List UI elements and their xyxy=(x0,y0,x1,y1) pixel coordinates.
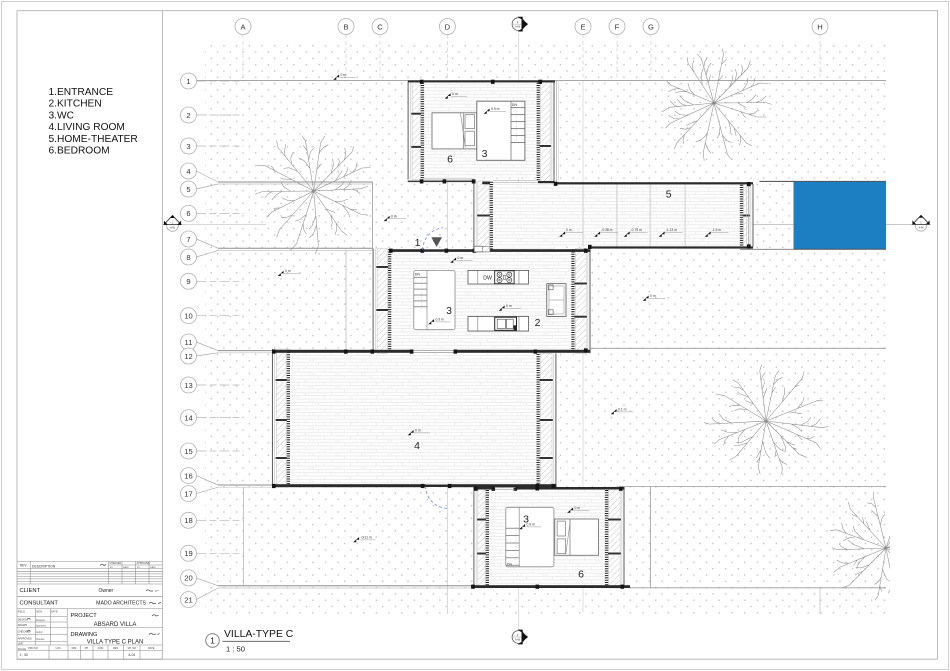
svg-text:0 m: 0 m xyxy=(285,269,291,273)
svg-text:DN: DN xyxy=(507,562,512,566)
svg-text:DRAWING: DRAWING xyxy=(71,632,98,638)
svg-text:H: H xyxy=(817,22,822,31)
svg-text:LOC.: LOC. xyxy=(56,647,62,650)
svg-text:0 m: 0 m xyxy=(650,294,656,298)
svg-text:4: 4 xyxy=(186,167,190,176)
svg-text:DATE: DATE xyxy=(123,566,129,569)
svg-text:3.WC: 3.WC xyxy=(49,110,74,121)
svg-text:F: F xyxy=(615,22,620,31)
svg-text:18: 18 xyxy=(184,516,192,525)
svg-text:COD: COD xyxy=(98,647,104,650)
svg-text:DATE: DATE xyxy=(148,647,155,650)
svg-text:0 m: 0 m xyxy=(452,92,458,96)
svg-text:DN: DN xyxy=(512,103,518,107)
svg-text:-1.5 m: -1.5 m xyxy=(712,228,722,232)
svg-text:6: 6 xyxy=(186,209,190,218)
svg-text:20: 20 xyxy=(184,574,192,583)
svg-text:DESIGN: DESIGN xyxy=(18,619,28,622)
svg-text:PH.: PH. xyxy=(85,647,89,650)
svg-text:1 : 50: 1 : 50 xyxy=(20,653,29,657)
svg-text:5.HOME-THEATER: 5.HOME-THEATER xyxy=(49,134,138,145)
svg-text:DIM.: DIM. xyxy=(72,647,78,650)
svg-text:2: 2 xyxy=(535,317,541,329)
svg-text:REV.: REV. xyxy=(20,564,27,568)
svg-text:A-06: A-06 xyxy=(170,227,176,230)
svg-text:5: 5 xyxy=(186,185,190,194)
svg-text:DATE: DATE xyxy=(150,566,156,569)
svg-text:7: 7 xyxy=(186,235,190,244)
svg-text:DW: DW xyxy=(483,276,492,282)
svg-text:-1.13 m: -1.13 m xyxy=(666,228,678,232)
svg-text:12: 12 xyxy=(184,352,192,361)
svg-text:8: 8 xyxy=(186,253,190,262)
svg-text:0 m: 0 m xyxy=(458,256,464,260)
svg-text:Author: Author xyxy=(36,631,43,634)
svg-text:DRAWN: DRAWN xyxy=(18,624,28,627)
svg-text:-0.38 m: -0.38 m xyxy=(601,228,613,232)
svg-text:0 m: 0 m xyxy=(566,228,572,232)
svg-text:0 m: 0 m xyxy=(506,304,512,308)
svg-text:PROJECT: PROJECT xyxy=(71,613,98,619)
svg-text:5: 5 xyxy=(666,189,672,201)
svg-text:-0.11 m: -0.11 m xyxy=(361,536,372,540)
svg-text:MADO ARCHITECTS: MADO ARCHITECTS xyxy=(96,600,146,606)
svg-text:E: E xyxy=(580,22,585,31)
svg-text:SH. NO: SH. NO xyxy=(127,647,136,650)
svg-text:0.1 m: 0.1 m xyxy=(618,408,627,412)
svg-text:3: 3 xyxy=(482,148,488,160)
svg-text:APPROVED: APPROVED xyxy=(137,562,151,565)
svg-text:C: C xyxy=(377,22,383,31)
svg-text:0.9 m: 0.9 m xyxy=(527,523,536,527)
svg-text:14: 14 xyxy=(184,413,192,422)
svg-text:19: 19 xyxy=(184,549,192,558)
svg-text:VILLA-TYPE C: VILLA-TYPE C xyxy=(224,629,294,640)
svg-text:Checker: Checker xyxy=(36,638,45,641)
svg-text:0.9 m: 0.9 m xyxy=(436,318,445,322)
svg-text:11: 11 xyxy=(185,338,193,347)
svg-text:PRO.NO: PRO.NO xyxy=(28,647,38,650)
svg-text:16: 16 xyxy=(184,471,192,480)
svg-text:SIGN: SIGN xyxy=(36,611,42,614)
svg-text:FIELD: FIELD xyxy=(18,611,25,614)
svg-text:VILLA TYPE C PLAN: VILLA TYPE C PLAN xyxy=(87,640,144,646)
svg-text:10: 10 xyxy=(184,312,192,321)
svg-text:Approved: Approved xyxy=(36,624,47,627)
svg-text:21: 21 xyxy=(184,595,192,604)
svg-text:A-06: A-06 xyxy=(919,227,925,230)
svg-text:15: 15 xyxy=(184,447,192,456)
svg-text:0 m: 0 m xyxy=(341,73,347,77)
svg-text:1: 1 xyxy=(210,636,215,646)
svg-text:DESCRIPTION: DESCRIPTION xyxy=(32,564,56,568)
svg-text:4: 4 xyxy=(414,440,420,452)
svg-text:CHECKED: CHECKED xyxy=(110,562,122,565)
svg-text:UNIT: UNIT xyxy=(18,642,24,645)
svg-text:SCALE: SCALE xyxy=(18,648,27,651)
svg-text:13: 13 xyxy=(184,381,192,390)
svg-text:3: 3 xyxy=(186,142,190,151)
svg-text:A-06: A-06 xyxy=(515,26,521,29)
svg-text:DATE: DATE xyxy=(51,611,58,614)
svg-text:3: 3 xyxy=(446,305,452,317)
svg-text:1: 1 xyxy=(415,237,421,249)
svg-text:-0.75 m: -0.75 m xyxy=(631,228,643,232)
svg-text:ABSARD VILLA: ABSARD VILLA xyxy=(94,622,137,628)
svg-text:CONSULTANT: CONSULTANT xyxy=(20,601,59,607)
svg-text:1.ENTRANCE: 1.ENTRANCE xyxy=(49,87,114,98)
svg-text:D: D xyxy=(445,22,451,31)
svg-text:G: G xyxy=(648,22,654,31)
svg-text:APPROVED: APPROVED xyxy=(18,638,32,641)
svg-text:1: 1 xyxy=(186,77,190,86)
svg-text:Owner: Owner xyxy=(99,588,114,594)
svg-text:Designer: Designer xyxy=(36,619,45,622)
svg-text:1 : 50: 1 : 50 xyxy=(226,645,245,654)
svg-text:2: 2 xyxy=(186,111,190,120)
svg-text:0 m: 0 m xyxy=(391,214,397,218)
svg-text:A-06: A-06 xyxy=(515,638,521,641)
svg-text:6: 6 xyxy=(447,154,453,166)
svg-text:17: 17 xyxy=(184,489,192,498)
svg-text:2.KITCHEN: 2.KITCHEN xyxy=(49,99,102,110)
svg-text:0 m: 0 m xyxy=(575,506,581,510)
svg-text:REV.: REV. xyxy=(113,647,119,650)
svg-text:0 m: 0 m xyxy=(415,429,421,433)
svg-text:DN: DN xyxy=(415,272,421,276)
svg-text:B: B xyxy=(343,22,348,31)
svg-text:4.LIVING ROOM: 4.LIVING ROOM xyxy=(49,122,125,133)
svg-text:6: 6 xyxy=(578,569,584,581)
svg-text:6.BEDROOM: 6.BEDROOM xyxy=(49,146,110,157)
svg-text:0.9 m: 0.9 m xyxy=(491,107,500,111)
svg-text:A-04: A-04 xyxy=(128,653,135,657)
svg-text:CLIENT: CLIENT xyxy=(20,588,41,594)
svg-text:9: 9 xyxy=(186,277,190,286)
